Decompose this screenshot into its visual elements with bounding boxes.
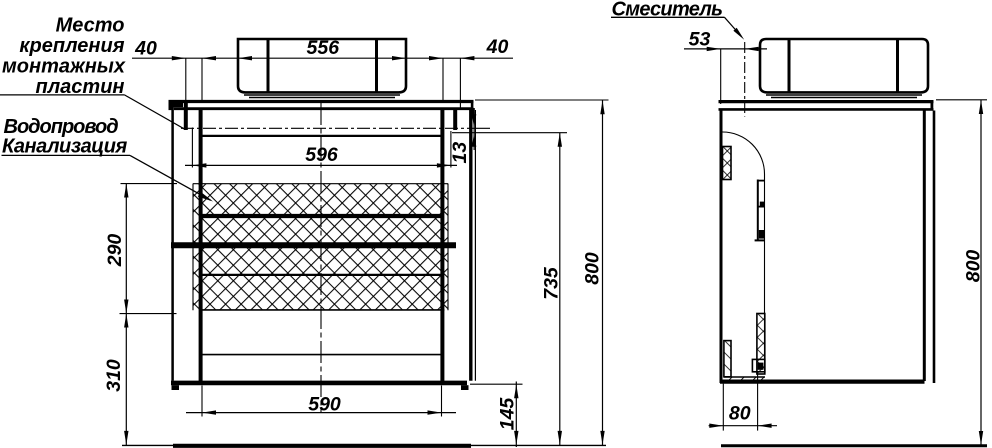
svg-text:80: 80 [729, 403, 751, 425]
svg-text:310: 310 [103, 359, 125, 392]
svg-text:крепления: крепления [19, 35, 124, 57]
svg-text:596: 596 [305, 144, 338, 166]
svg-text:145: 145 [497, 397, 519, 431]
svg-text:монтажных: монтажных [2, 56, 126, 78]
svg-text:Канализация: Канализация [2, 135, 127, 157]
svg-text:290: 290 [104, 234, 126, 268]
svg-text:53: 53 [689, 29, 711, 51]
svg-text:556: 556 [307, 37, 340, 59]
svg-text:13: 13 [449, 142, 471, 164]
svg-text:800: 800 [963, 250, 985, 283]
svg-text:40: 40 [134, 38, 157, 60]
svg-text:Место: Место [56, 15, 125, 37]
svg-text:40: 40 [486, 36, 509, 58]
svg-text:590: 590 [308, 394, 341, 416]
svg-text:735: 735 [541, 266, 563, 300]
svg-text:800: 800 [582, 252, 604, 285]
